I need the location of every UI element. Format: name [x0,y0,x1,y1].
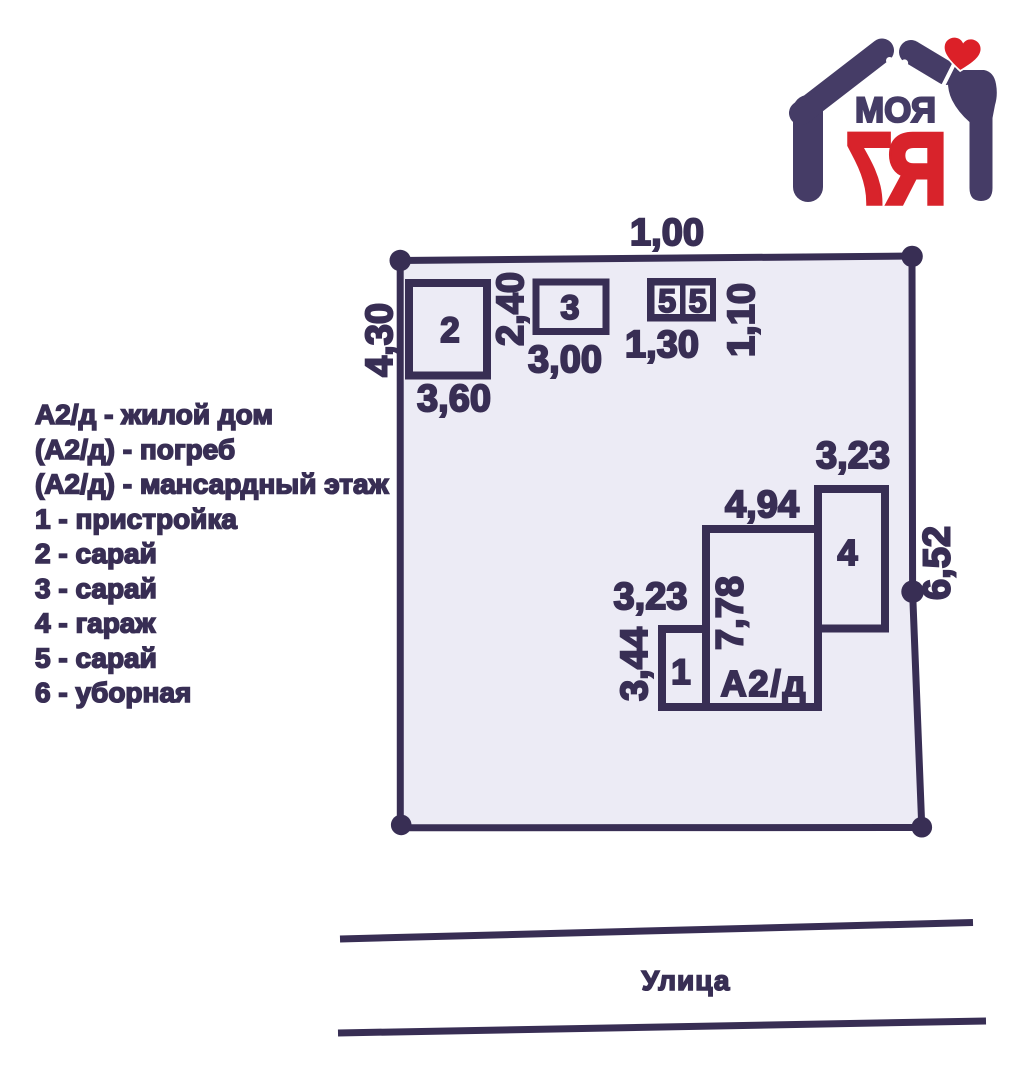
svg-text:2: 2 [440,311,459,350]
svg-text:7,78: 7,78 [710,576,752,650]
svg-text:1,10: 1,10 [721,283,763,357]
svg-text:А2/д: А2/д [721,663,808,704]
svg-text:(А2/д) - погреб: (А2/д) - погреб [35,434,235,465]
svg-text:4,94: 4,94 [725,484,799,526]
svg-text:Улица: Улица [642,965,731,996]
svg-text:1 - пристройка: 1 - пристройка [35,503,237,534]
svg-text:1,30: 1,30 [625,324,699,366]
svg-text:5 - сарай: 5 - сарай [35,642,157,673]
svg-text:5: 5 [689,283,707,319]
svg-text:1: 1 [671,653,690,692]
svg-text:3,23: 3,23 [816,435,890,477]
svg-text:6 - уборная: 6 - уборная [35,677,191,708]
svg-text:(А2/д) - мансардный этаж: (А2/д) - мансардный этаж [35,469,390,500]
svg-text:6,52: 6,52 [917,526,959,600]
svg-text:3,23: 3,23 [614,576,688,618]
svg-text:7: 7 [846,112,893,225]
svg-text:5: 5 [658,283,676,319]
svg-text:3,00: 3,00 [528,339,602,381]
svg-text:3: 3 [561,289,580,327]
svg-text:3,44: 3,44 [614,627,656,701]
svg-text:3,60: 3,60 [417,378,491,420]
svg-text:2 - сарай: 2 - сарай [35,538,157,569]
svg-text:3 - сарай: 3 - сарай [35,573,157,604]
svg-text:Я: Я [887,112,947,225]
svg-text:1,00: 1,00 [630,212,704,254]
svg-text:4,30: 4,30 [359,303,401,377]
svg-text:4 - гараж: 4 - гараж [35,608,156,639]
svg-text:А2/д - жилой дом: А2/д - жилой дом [35,399,273,430]
svg-text:4: 4 [837,532,857,573]
svg-text:2,40: 2,40 [490,272,532,346]
